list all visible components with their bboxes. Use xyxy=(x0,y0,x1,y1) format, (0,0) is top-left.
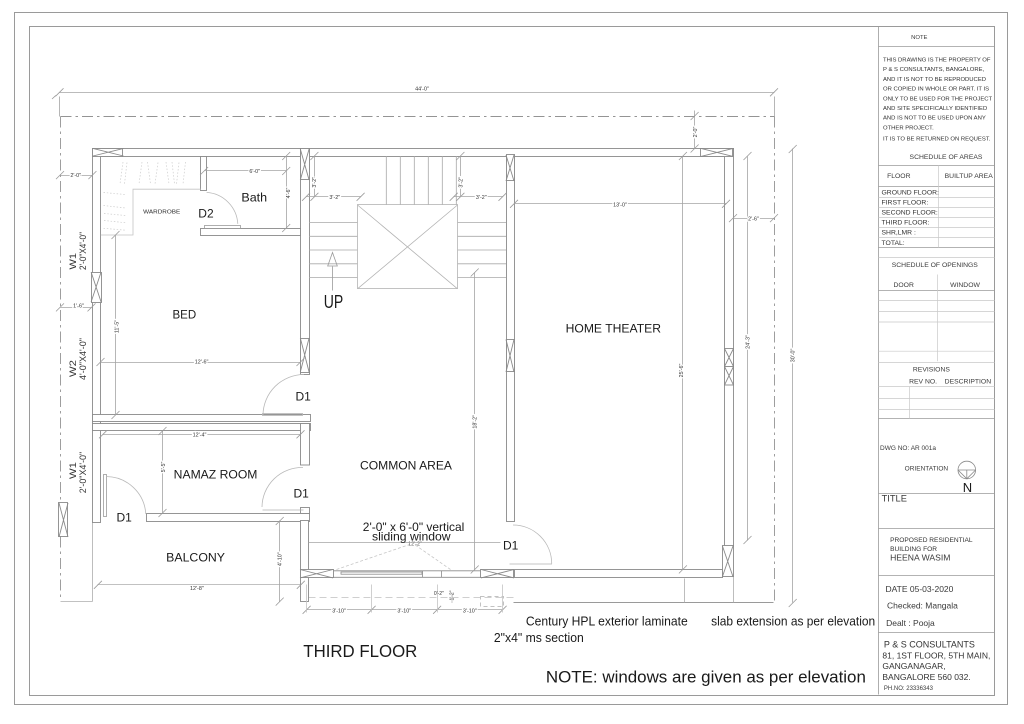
svg-text:3'-2": 3'-2" xyxy=(476,195,487,201)
svg-text:HEENA WASIM: HEENA WASIM xyxy=(890,553,950,563)
svg-text:6'-0": 6'-0" xyxy=(249,169,260,175)
svg-text:D1: D1 xyxy=(503,539,519,553)
svg-text:W2: W2 xyxy=(68,360,78,377)
svg-text:2'-0"X4'-0": 2'-0"X4'-0" xyxy=(78,452,88,494)
svg-text:P & S CONSULTANTS, BANGALORE,: P & S CONSULTANTS, BANGALORE, xyxy=(883,67,985,73)
svg-text:3'-2": 3'-2" xyxy=(312,177,318,188)
svg-text:DESCRIPTION: DESCRIPTION xyxy=(945,378,992,385)
svg-text:D1: D1 xyxy=(294,487,310,501)
svg-text:W1: W1 xyxy=(68,253,78,270)
svg-text:13'-0": 13'-0" xyxy=(613,202,627,208)
svg-text:slab extension as per elevatio: slab extension as per elevation xyxy=(711,615,875,629)
svg-text:THIRD FLOOR:: THIRD FLOOR: xyxy=(882,220,930,227)
svg-text:DOOR: DOOR xyxy=(893,282,913,289)
svg-text:SHR,LMR :: SHR,LMR : xyxy=(882,230,916,237)
svg-text:GANGANAGAR,: GANGANAGAR, xyxy=(882,661,945,671)
svg-text:UP: UP xyxy=(324,292,344,313)
svg-text:W1: W1 xyxy=(68,462,78,479)
svg-text:sliding window: sliding window xyxy=(372,530,451,544)
svg-text:PROPOSED RESIDENTIAL: PROPOSED RESIDENTIAL xyxy=(890,537,973,544)
svg-text:BANGALORE 560 032.: BANGALORE 560 032. xyxy=(882,672,970,682)
svg-text:GROUND FLOOR:: GROUND FLOOR: xyxy=(882,189,940,196)
svg-text:IT IS TO BE RETURNED ON REQUES: IT IS TO BE RETURNED ON REQUEST. xyxy=(883,136,991,142)
svg-text:REV NO.: REV NO. xyxy=(909,378,937,385)
svg-text:ORIENTATION: ORIENTATION xyxy=(905,466,949,473)
svg-text:AND IT IS NOT TO BE REPRODUCED: AND IT IS NOT TO BE REPRODUCED xyxy=(883,77,986,83)
svg-text:AND IS NOT TO BE USED UPON ANY: AND IS NOT TO BE USED UPON ANY xyxy=(883,116,986,122)
svg-text:2'-0": 2'-0" xyxy=(693,127,699,138)
svg-text:4'-0"X4'-0": 4'-0"X4'-0" xyxy=(78,338,88,380)
svg-text:1'-2": 1'-2" xyxy=(450,590,456,600)
svg-text:NOTE: NOTE xyxy=(911,35,927,41)
svg-text:THIS DRAWING IS THE PROPERTY O: THIS DRAWING IS THE PROPERTY OF xyxy=(883,58,991,64)
svg-text:Dealt : Pooja: Dealt : Pooja xyxy=(886,618,935,628)
svg-text:Bath: Bath xyxy=(241,190,267,204)
svg-text:81, 1ST FLOOR, 5TH MAIN,: 81, 1ST FLOOR, 5TH MAIN, xyxy=(882,650,990,660)
svg-text:SCHEDULE OF AREAS: SCHEDULE OF AREAS xyxy=(910,154,983,161)
svg-text:BUILTUP AREA: BUILTUP AREA xyxy=(945,173,994,180)
svg-text:1'-6": 1'-6" xyxy=(73,304,84,310)
svg-text:0'-2": 0'-2" xyxy=(434,591,444,597)
svg-text:REVISIONS: REVISIONS xyxy=(913,366,950,373)
svg-text:N: N xyxy=(963,480,972,495)
svg-text:DATE 05-03-2020: DATE 05-03-2020 xyxy=(886,584,954,594)
svg-text:3'-2": 3'-2" xyxy=(458,177,464,188)
svg-text:TITLE: TITLE xyxy=(882,493,907,503)
svg-text:FIRST FLOOR:: FIRST FLOOR: xyxy=(882,199,929,206)
svg-text:WINDOW: WINDOW xyxy=(950,282,980,289)
svg-text:TOTAL:: TOTAL: xyxy=(882,240,905,247)
svg-text:3'-2": 3'-2" xyxy=(329,195,340,201)
svg-text:11'-5": 11'-5" xyxy=(114,320,120,333)
svg-text:30'-0": 30'-0" xyxy=(791,348,797,362)
svg-text:5'-5": 5'-5" xyxy=(161,462,167,473)
svg-text:PH.NO: 23336343: PH.NO: 23336343 xyxy=(884,686,934,692)
svg-text:ONLY TO BE USED FOR THE PROJEC: ONLY TO BE USED FOR THE PROJECT xyxy=(883,96,993,102)
svg-text:OR COPIED IN WHOLE OR PART. IT: OR COPIED IN WHOLE OR PART. IT IS xyxy=(883,87,989,93)
svg-text:BED: BED xyxy=(173,308,197,322)
svg-text:AND SITE SPECIFICALLY IDENTIFI: AND SITE SPECIFICALLY IDENTIFIED xyxy=(883,106,987,112)
svg-text:44'-0": 44'-0" xyxy=(415,87,429,93)
svg-text:THIRD FLOOR: THIRD FLOOR xyxy=(303,641,417,661)
svg-text:NAMAZ ROOM: NAMAZ ROOM xyxy=(174,468,258,482)
svg-text:3'-10": 3'-10" xyxy=(397,608,411,614)
svg-text:3'-10": 3'-10" xyxy=(332,608,346,614)
svg-text:2"x4" ms section: 2"x4" ms section xyxy=(494,631,584,645)
svg-text:OTHER PROJECT.: OTHER PROJECT. xyxy=(883,125,934,131)
svg-text:NOTE: windows are given as per: NOTE: windows are given as per elevation xyxy=(546,668,866,686)
svg-text:Century HPL exterior laminate: Century HPL exterior laminate xyxy=(526,615,688,629)
svg-text:FLOOR: FLOOR xyxy=(887,173,911,180)
svg-text:P & S CONSULTANTS: P & S CONSULTANTS xyxy=(884,640,975,650)
svg-text:SCHEDULE OF OPENINGS: SCHEDULE OF OPENINGS xyxy=(892,262,979,269)
svg-text:D2: D2 xyxy=(198,206,214,220)
svg-text:2'-0"X4'-0": 2'-0"X4'-0" xyxy=(78,232,88,270)
svg-text:2'-0": 2'-0" xyxy=(70,173,81,179)
svg-text:12'-6": 12'-6" xyxy=(195,359,209,365)
svg-text:D1: D1 xyxy=(296,390,312,404)
svg-text:25'-6": 25'-6" xyxy=(679,364,685,378)
svg-text:4'-6": 4'-6" xyxy=(286,188,292,199)
svg-text:WARDROBE: WARDROBE xyxy=(143,210,180,216)
svg-text:12'-4": 12'-4" xyxy=(193,433,207,439)
svg-text:2'-6": 2'-6" xyxy=(748,217,759,223)
svg-text:4'-10": 4'-10" xyxy=(278,552,284,566)
svg-text:BALCONY: BALCONY xyxy=(166,551,225,565)
svg-text:12'-8": 12'-8" xyxy=(190,586,204,592)
svg-text:D1: D1 xyxy=(117,511,133,525)
svg-text:DWG NO: AR 001a: DWG NO: AR 001a xyxy=(880,445,936,452)
svg-text:3'-10": 3'-10" xyxy=(463,608,477,614)
svg-text:SECOND FLOOR:: SECOND FLOOR: xyxy=(882,210,938,217)
svg-text:Checked: Mangala: Checked: Mangala xyxy=(887,601,958,611)
svg-text:COMMON AREA: COMMON AREA xyxy=(360,459,453,473)
svg-text:18'-2": 18'-2" xyxy=(473,415,479,429)
svg-text:24'-3": 24'-3" xyxy=(746,335,752,349)
svg-text:HOME THEATER: HOME THEATER xyxy=(566,322,662,336)
